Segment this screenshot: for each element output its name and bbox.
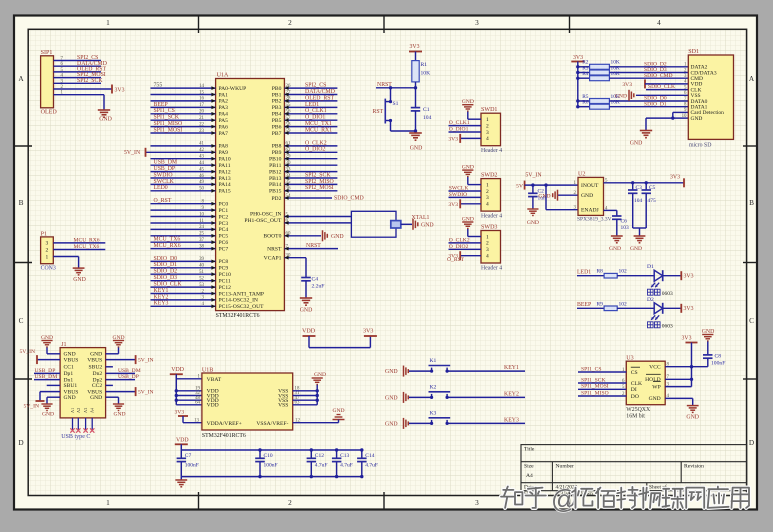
svg-text:VCAP1: VCAP1 <box>264 256 282 262</box>
svg-text:BOOT0: BOOT0 <box>263 234 281 240</box>
svg-text:DATA/CMD: DATA/CMD <box>305 89 335 95</box>
svg-text:O_RST: O_RST <box>154 198 172 204</box>
svg-text:PA1: PA1 <box>219 92 229 98</box>
svg-text:U1A: U1A <box>217 73 229 79</box>
svg-text:U2: U2 <box>578 172 585 178</box>
svg-text:SPI1_SCK: SPI1_SCK <box>154 115 180 121</box>
svg-text:5V_IN: 5V_IN <box>138 390 154 396</box>
svg-text:GND: GND <box>314 372 326 378</box>
svg-text:2: 2 <box>486 189 489 195</box>
svg-text:USB_DM: USB_DM <box>154 160 178 166</box>
svg-text:1: 1 <box>46 254 49 260</box>
svg-text:5V_IN: 5V_IN <box>124 150 141 156</box>
svg-text:4: 4 <box>657 19 661 27</box>
svg-text:VDDA/VREF+: VDDA/VREF+ <box>207 421 242 427</box>
svg-text:LED0: LED0 <box>154 185 168 191</box>
svg-text:58: 58 <box>286 122 291 127</box>
svg-text:GND: GND <box>73 277 86 283</box>
svg-text:ENADJ: ENADJ <box>581 208 600 214</box>
svg-text:SPI1_CS: SPI1_CS <box>154 108 175 114</box>
svg-text:O_DIO2: O_DIO2 <box>449 244 469 250</box>
svg-text:VDD: VDD <box>207 403 219 409</box>
svg-text:SDIO_D1: SDIO_D1 <box>154 262 178 268</box>
svg-text:GND: GND <box>410 146 423 152</box>
svg-text:45: 45 <box>199 167 204 172</box>
svg-text:1: 1 <box>106 499 110 507</box>
svg-text:O_CLK1: O_CLK1 <box>449 120 470 126</box>
svg-text:MCU_RX6: MCU_RX6 <box>74 237 100 243</box>
svg-text:PA10: PA10 <box>219 157 231 163</box>
svg-text:3V3: 3V3 <box>175 410 185 416</box>
svg-text:PB2: PB2 <box>272 99 282 105</box>
svg-text:41: 41 <box>199 142 204 147</box>
svg-text:3V3: 3V3 <box>363 329 373 335</box>
svg-text:KEY1: KEY1 <box>154 288 169 294</box>
svg-text:61: 61 <box>286 142 291 147</box>
svg-text:4: 4 <box>486 136 489 142</box>
svg-text:C: C <box>19 317 24 325</box>
svg-text:O_CLK1: O_CLK1 <box>305 108 327 114</box>
svg-text:24: 24 <box>199 225 204 230</box>
svg-text:CLK: CLK <box>631 381 642 387</box>
svg-text:SPI2_CS: SPI2_CS <box>305 83 326 89</box>
svg-text:4: 4 <box>486 202 489 208</box>
svg-text:micro SD: micro SD <box>689 143 711 149</box>
svg-text:3V3: 3V3 <box>684 274 694 280</box>
svg-text:17: 17 <box>199 103 204 108</box>
svg-text:W25QXX: W25QXX <box>626 407 651 413</box>
svg-text:5V_IN: 5V_IN <box>19 349 35 355</box>
svg-text:C4: C4 <box>312 277 319 283</box>
svg-text:4: 4 <box>486 254 489 260</box>
svg-text:PA2: PA2 <box>219 99 229 105</box>
svg-text:100nF: 100nF <box>711 361 725 367</box>
svg-text:C8: C8 <box>715 354 722 360</box>
svg-text:MCU_TX6: MCU_TX6 <box>74 244 100 250</box>
svg-text:O_DIO2: O_DIO2 <box>305 147 325 153</box>
svg-text:SWD3: SWD3 <box>481 225 497 231</box>
svg-text:26: 26 <box>286 84 291 89</box>
svg-text:DO: DO <box>631 394 639 400</box>
svg-text:53: 53 <box>199 283 204 288</box>
svg-text:54: 54 <box>286 194 291 199</box>
svg-text:SPI2_SCK: SPI2_SCK <box>305 172 331 178</box>
svg-text:PC12: PC12 <box>219 285 232 291</box>
svg-text:102: 102 <box>619 301 627 307</box>
svg-text:3: 3 <box>475 499 479 507</box>
svg-text:51: 51 <box>199 270 204 275</box>
svg-text:USB_DM: USB_DM <box>118 368 141 374</box>
svg-text:3V3: 3V3 <box>448 136 458 142</box>
svg-text:0603: 0603 <box>662 324 673 330</box>
svg-text:475: 475 <box>648 198 656 204</box>
svg-text:16M bit: 16M bit <box>626 414 645 420</box>
svg-text:GND: GND <box>332 408 344 414</box>
svg-text:C14: C14 <box>365 453 374 459</box>
svg-text:SDIO_CLK: SDIO_CLK <box>648 84 675 90</box>
svg-text:KEY2: KEY2 <box>504 391 519 397</box>
svg-text:PC15-OSC32_OUT: PC15-OSC32_OUT <box>219 304 265 310</box>
svg-text:4.7uF: 4.7uF <box>340 463 353 469</box>
svg-text:11: 11 <box>199 219 204 224</box>
svg-text:PC5: PC5 <box>219 234 229 240</box>
svg-text:C12: C12 <box>315 453 324 459</box>
svg-text:MCU_TX6: MCU_TX6 <box>154 237 181 243</box>
svg-text:MCU_RX1: MCU_RX1 <box>305 127 332 133</box>
svg-text:PB10: PB10 <box>269 157 282 163</box>
svg-text:VDD: VDD <box>171 367 184 373</box>
svg-text:PA5: PA5 <box>219 118 229 124</box>
svg-text:3V3: 3V3 <box>409 44 419 50</box>
svg-text:VSSA/VREF-: VSSA/VREF- <box>256 421 288 427</box>
svg-text:GND: GND <box>99 117 112 123</box>
svg-text:3V3: 3V3 <box>115 87 125 93</box>
svg-text:D: D <box>18 439 23 447</box>
svg-text:HOLD: HOLD <box>645 377 661 383</box>
svg-text:3: 3 <box>475 19 479 27</box>
svg-text:PA12: PA12 <box>219 169 231 175</box>
svg-text:SPI2_SCK: SPI2_SCK <box>77 78 103 84</box>
svg-text:USB type C: USB type C <box>61 434 90 440</box>
svg-text:SWCLK: SWCLK <box>449 186 469 192</box>
svg-text:15: 15 <box>199 90 204 95</box>
svg-text:R4: R4 <box>582 71 589 77</box>
svg-text:C1: C1 <box>423 107 430 113</box>
svg-text:PA13: PA13 <box>219 176 231 182</box>
svg-text:LED1: LED1 <box>305 102 319 108</box>
svg-text:59: 59 <box>286 129 291 134</box>
svg-text:SBU1: SBU1 <box>64 383 78 389</box>
svg-text:PB4: PB4 <box>272 112 282 118</box>
svg-text:GND: GND <box>300 308 313 314</box>
svg-text:SWD1: SWD1 <box>481 107 497 113</box>
svg-text:104: 104 <box>423 115 432 121</box>
svg-text:52: 52 <box>199 277 204 282</box>
svg-text:B: B <box>19 199 24 207</box>
svg-text:SPI1_CS: SPI1_CS <box>581 366 602 372</box>
svg-text:INOUT: INOUT <box>581 183 599 189</box>
svg-text:3V3: 3V3 <box>684 306 694 312</box>
svg-text:100nF: 100nF <box>264 463 278 469</box>
svg-text:O_CLK2: O_CLK2 <box>449 237 470 243</box>
svg-text:2: 2 <box>486 241 489 247</box>
svg-text:SD1: SD1 <box>688 49 699 55</box>
svg-text:A: A <box>749 75 755 83</box>
svg-text:34: 34 <box>286 174 291 179</box>
svg-text:PB13: PB13 <box>269 176 282 182</box>
svg-text:GND: GND <box>630 141 643 147</box>
svg-text:GND: GND <box>385 395 398 401</box>
svg-text:NRST: NRST <box>267 246 282 252</box>
svg-text:3V3: 3V3 <box>622 82 632 88</box>
svg-text:NRST: NRST <box>306 243 321 249</box>
svg-text:SPI1_MISO: SPI1_MISO <box>581 390 609 396</box>
svg-text:10K: 10K <box>611 100 620 106</box>
svg-text:3V3: 3V3 <box>681 336 691 342</box>
svg-text:GND: GND <box>630 246 642 252</box>
svg-text:40: 40 <box>199 264 204 269</box>
svg-text:2: 2 <box>288 19 292 27</box>
svg-text:PB12: PB12 <box>269 169 282 175</box>
svg-text:100nF: 100nF <box>185 463 199 469</box>
svg-text:STM32F401RCT6: STM32F401RCT6 <box>202 433 246 439</box>
svg-text:PB3: PB3 <box>272 105 282 111</box>
svg-text:GND: GND <box>581 193 593 199</box>
svg-text:VDD: VDD <box>302 329 316 335</box>
svg-text:RST: RST <box>373 109 384 115</box>
svg-text:K3: K3 <box>430 410 437 416</box>
svg-text:SWCLK: SWCLK <box>154 179 175 185</box>
svg-text:KEY1: KEY1 <box>504 365 519 371</box>
svg-text:1: 1 <box>106 19 110 27</box>
svg-text:PA6: PA6 <box>219 124 229 130</box>
svg-text:10: 10 <box>199 212 204 217</box>
svg-text:LED1: LED1 <box>577 269 591 275</box>
svg-text:PA15: PA15 <box>219 189 231 195</box>
svg-text:USB_DM: USB_DM <box>35 374 58 380</box>
svg-text:C13: C13 <box>340 453 349 459</box>
svg-text:4.7uF: 4.7uF <box>365 463 378 469</box>
svg-text:PA4: PA4 <box>219 112 229 118</box>
svg-text:GND: GND <box>113 412 125 418</box>
svg-text:4.7uF: 4.7uF <box>315 463 328 469</box>
svg-text:R9: R9 <box>597 301 604 307</box>
svg-text:14: 14 <box>199 84 204 89</box>
svg-text:PH1-OSC_OUT: PH1-OSC_OUT <box>244 218 282 224</box>
svg-text:K2: K2 <box>430 384 437 390</box>
svg-text:10K: 10K <box>611 71 620 77</box>
svg-text:SPI1_MOSI: SPI1_MOSI <box>154 127 183 133</box>
svg-text:PB7: PB7 <box>272 131 282 137</box>
svg-text:Header 4: Header 4 <box>481 148 502 154</box>
svg-text:A4: A4 <box>526 473 533 479</box>
svg-text:STM32F401RCT6: STM32F401RCT6 <box>216 313 260 319</box>
svg-text:C7: C7 <box>185 453 192 459</box>
svg-text:5V_IN: 5V_IN <box>525 172 542 178</box>
svg-text:SDIO_CMD: SDIO_CMD <box>334 196 364 202</box>
svg-text:3V3: 3V3 <box>448 202 458 208</box>
svg-text:36: 36 <box>286 187 291 192</box>
svg-text:3: 3 <box>486 195 489 201</box>
svg-text:1: 1 <box>486 234 489 240</box>
svg-text:2: 2 <box>486 123 489 129</box>
svg-text:SDIO_CLK: SDIO_CLK <box>154 282 183 288</box>
svg-text:30: 30 <box>286 254 291 259</box>
svg-text:PB11: PB11 <box>269 163 281 169</box>
svg-text:60: 60 <box>286 232 291 237</box>
svg-text:KEY3: KEY3 <box>504 417 519 423</box>
svg-text:23: 23 <box>199 129 204 134</box>
svg-text:PA7: PA7 <box>219 131 229 137</box>
svg-text:A3: A3 <box>83 408 88 413</box>
svg-text:O_CLK2: O_CLK2 <box>305 140 327 146</box>
svg-text:SWDIO: SWDIO <box>154 172 173 178</box>
svg-text:USB_DP: USB_DP <box>35 368 56 374</box>
svg-text:2: 2 <box>288 499 292 507</box>
svg-text:PB9: PB9 <box>272 150 282 156</box>
svg-text:SPI1_SCK: SPI1_SCK <box>581 377 606 383</box>
svg-text:Dn2: Dn2 <box>93 371 103 377</box>
svg-text:C6: C6 <box>621 219 628 225</box>
svg-text:PC6: PC6 <box>219 240 229 246</box>
svg-text:102: 102 <box>619 269 627 275</box>
svg-text:PA8: PA8 <box>219 144 229 150</box>
svg-text:KEY2: KEY2 <box>154 294 169 300</box>
svg-text:10K: 10K <box>421 71 431 77</box>
svg-text:PA3: PA3 <box>219 105 229 111</box>
svg-text:21: 21 <box>199 116 204 121</box>
svg-text:GND: GND <box>385 369 398 375</box>
svg-text:44: 44 <box>199 161 204 166</box>
svg-text:30: 30 <box>286 161 291 166</box>
svg-text:KEY3: KEY3 <box>154 301 169 307</box>
svg-text:42: 42 <box>199 148 204 153</box>
svg-text:3: 3 <box>486 130 489 136</box>
svg-text:A1: A1 <box>70 408 75 413</box>
svg-text:GND: GND <box>64 395 76 401</box>
svg-text:755: 755 <box>154 83 163 89</box>
svg-text:GND: GND <box>691 116 703 122</box>
svg-text:SBU2: SBU2 <box>89 365 103 371</box>
svg-text:3V3: 3V3 <box>670 175 680 181</box>
svg-text:GND: GND <box>42 412 54 418</box>
svg-text:PA14: PA14 <box>219 182 231 188</box>
svg-text:SPI2_MISO: SPI2_MISO <box>305 179 334 185</box>
svg-text:A: A <box>18 75 24 83</box>
svg-text:0603: 0603 <box>662 291 673 297</box>
svg-text:VSS: VSS <box>278 403 288 409</box>
svg-text:VBAT: VBAT <box>207 377 222 383</box>
svg-text:VBUS: VBUS <box>87 357 102 363</box>
svg-text:PD2: PD2 <box>271 196 281 202</box>
svg-text:29: 29 <box>286 155 291 160</box>
svg-text:O_DIO1: O_DIO1 <box>449 127 469 133</box>
svg-text:SPI1_MISO: SPI1_MISO <box>154 121 183 127</box>
svg-text:VCC: VCC <box>649 365 661 371</box>
svg-text:PB15: PB15 <box>269 189 282 195</box>
svg-text:PC1: PC1 <box>219 208 229 214</box>
svg-text:R8: R8 <box>597 269 604 275</box>
svg-text:37: 37 <box>199 238 204 243</box>
svg-text:PC9: PC9 <box>219 266 229 272</box>
svg-text:35: 35 <box>286 180 291 185</box>
svg-text:1: 1 <box>486 117 489 123</box>
svg-text:PH0-OSC_IN: PH0-OSC_IN <box>250 212 281 218</box>
svg-text:S1: S1 <box>393 101 399 107</box>
svg-text:49: 49 <box>199 180 204 185</box>
svg-text:O_DIO1: O_DIO1 <box>305 115 325 121</box>
svg-text:A4: A4 <box>90 407 95 413</box>
svg-text:16: 16 <box>199 97 204 102</box>
svg-text:Dp1: Dp1 <box>64 371 74 377</box>
svg-text:GND: GND <box>421 222 434 228</box>
svg-text:C: C <box>749 317 754 325</box>
svg-text:R6: R6 <box>582 100 589 106</box>
svg-text:PC4: PC4 <box>219 227 229 233</box>
svg-text:VDD: VDD <box>176 438 189 444</box>
svg-text:55: 55 <box>286 103 291 108</box>
svg-text:OLED_RST: OLED_RST <box>305 95 335 101</box>
svg-text:PC7: PC7 <box>219 246 229 252</box>
svg-text:SDIO_CMD: SDIO_CMD <box>644 73 673 79</box>
svg-text:GND: GND <box>385 421 398 427</box>
svg-text:10: 10 <box>682 114 687 119</box>
svg-text:GND: GND <box>649 396 661 402</box>
svg-text:SDIO_D0: SDIO_D0 <box>154 256 178 262</box>
svg-text:PC11: PC11 <box>219 279 231 285</box>
svg-text:SDIO_D2: SDIO_D2 <box>154 269 178 275</box>
svg-text:PA9: PA9 <box>219 150 229 156</box>
svg-text:1: 1 <box>486 182 489 188</box>
svg-text:PC0: PC0 <box>219 202 229 208</box>
svg-text:28: 28 <box>286 97 291 102</box>
svg-text:USB_DP: USB_DP <box>154 166 176 172</box>
svg-text:USB_DP: USB_DP <box>118 374 139 380</box>
svg-text:A2: A2 <box>76 408 81 413</box>
svg-text:BEEP: BEEP <box>577 302 591 308</box>
svg-text:D2: D2 <box>647 297 654 303</box>
svg-text:O_RST: O_RST <box>447 257 465 263</box>
svg-text:MCU_TX1: MCU_TX1 <box>305 121 332 127</box>
svg-text:VBUS: VBUS <box>64 357 79 363</box>
svg-text:38: 38 <box>199 244 204 249</box>
svg-text:BEEP: BEEP <box>154 102 168 108</box>
svg-text:PB0: PB0 <box>272 86 282 92</box>
svg-text:SDIO_D3: SDIO_D3 <box>154 275 178 281</box>
svg-text:CON3: CON3 <box>41 265 56 271</box>
svg-text:GND: GND <box>615 93 627 99</box>
svg-text:PB1: PB1 <box>272 92 282 98</box>
svg-text:PC10: PC10 <box>219 272 232 278</box>
svg-text:33: 33 <box>286 167 291 172</box>
svg-text:64: 64 <box>195 401 200 406</box>
svg-text:Header 4: Header 4 <box>481 266 502 272</box>
svg-text:D1: D1 <box>647 264 654 270</box>
svg-text:3: 3 <box>486 247 489 253</box>
svg-text:22: 22 <box>199 122 204 127</box>
svg-text:PB8: PB8 <box>272 144 282 150</box>
svg-text:R1: R1 <box>421 62 428 68</box>
svg-text:PB6: PB6 <box>272 124 282 130</box>
svg-text:DI: DI <box>631 387 637 393</box>
svg-text:CC1: CC1 <box>64 365 74 371</box>
svg-text:MCU_RX6: MCU_RX6 <box>154 243 181 249</box>
svg-text:27: 27 <box>286 90 291 95</box>
svg-text:SWD2: SWD2 <box>481 173 497 179</box>
svg-text:GND: GND <box>331 234 344 240</box>
svg-text:43: 43 <box>199 155 204 160</box>
svg-text:SPI2_MOSI: SPI2_MOSI <box>305 185 334 191</box>
svg-text:SDIO_D1: SDIO_D1 <box>644 101 667 107</box>
svg-text:OLED: OLED <box>41 110 58 116</box>
svg-text:Number: Number <box>556 464 574 470</box>
svg-text:PC14-OSC32_IN: PC14-OSC32_IN <box>219 298 258 304</box>
svg-text:C5: C5 <box>649 185 656 191</box>
svg-text:PC13-ANTI_TAMP: PC13-ANTI_TAMP <box>219 291 265 297</box>
svg-text:PA0-WKUP: PA0-WKUP <box>219 86 247 92</box>
svg-text:PB5: PB5 <box>272 118 282 124</box>
svg-text:GND: GND <box>538 194 550 200</box>
svg-text:WP: WP <box>652 384 660 390</box>
svg-text:PA11: PA11 <box>219 163 231 169</box>
svg-text:C10: C10 <box>264 453 273 459</box>
svg-text:39: 39 <box>199 257 204 262</box>
svg-text:5V: 5V <box>516 183 523 189</box>
svg-text:5V_IN: 5V_IN <box>138 358 154 364</box>
svg-text:56: 56 <box>286 110 291 115</box>
svg-text:PB14: PB14 <box>269 182 282 188</box>
svg-text:B: B <box>749 199 754 207</box>
